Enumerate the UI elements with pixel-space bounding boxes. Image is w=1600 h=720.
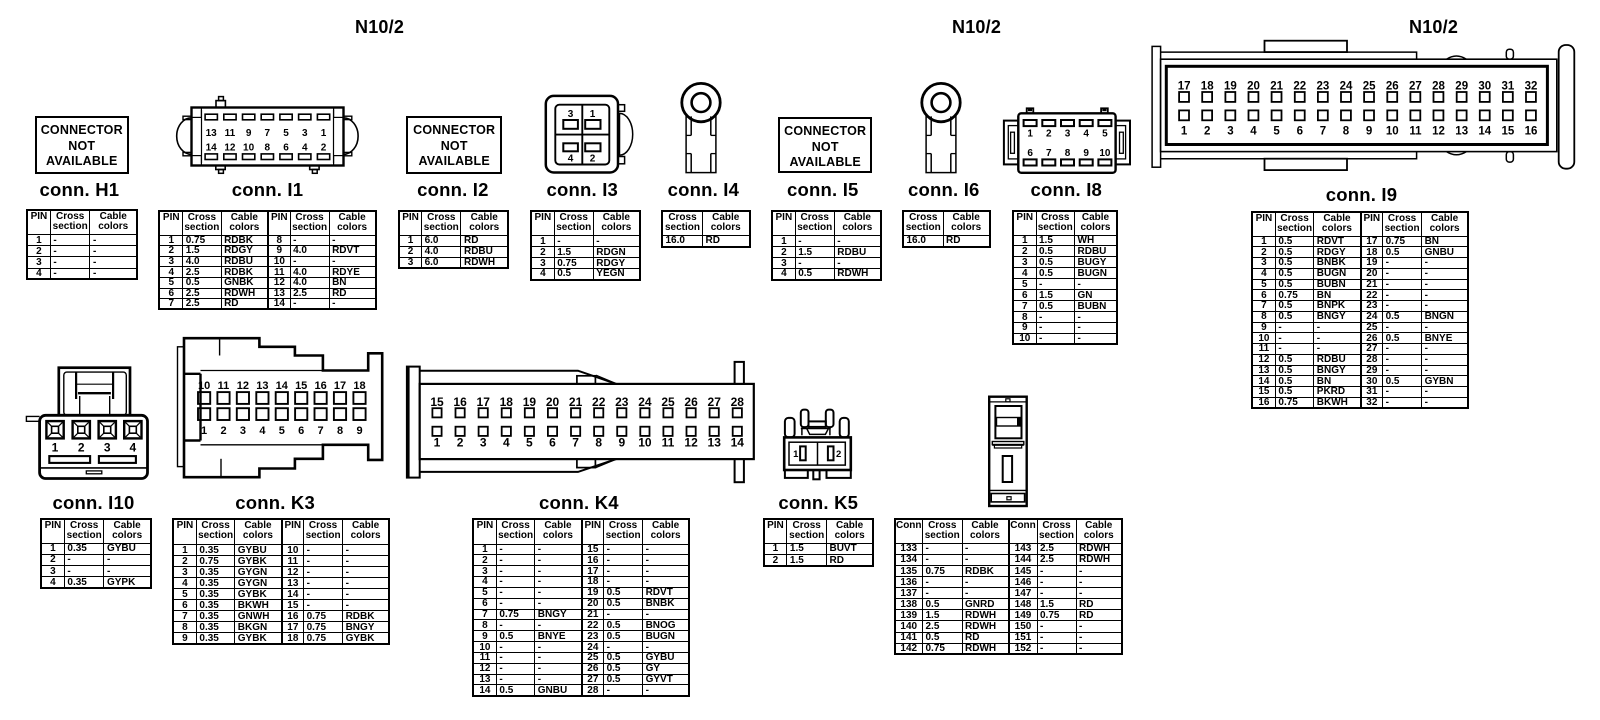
svg-text:2: 2 <box>321 143 327 154</box>
svg-text:1: 1 <box>1027 129 1033 140</box>
svg-text:26: 26 <box>1386 81 1399 93</box>
svg-text:4: 4 <box>568 154 574 165</box>
svg-text:17: 17 <box>1178 81 1191 93</box>
svg-text:5: 5 <box>1102 129 1108 140</box>
svg-text:17: 17 <box>334 380 346 392</box>
svg-text:13: 13 <box>708 435 722 449</box>
svg-text:4: 4 <box>1083 129 1089 140</box>
svg-text:4: 4 <box>129 440 136 454</box>
svg-text:28: 28 <box>1432 81 1445 93</box>
svg-text:28: 28 <box>731 395 745 409</box>
svg-text:6: 6 <box>283 143 289 154</box>
svg-text:31: 31 <box>1502 81 1515 93</box>
svg-text:16: 16 <box>1525 126 1538 138</box>
svg-text:3: 3 <box>1065 129 1071 140</box>
svg-text:2: 2 <box>1046 129 1052 140</box>
svg-text:6: 6 <box>549 435 556 449</box>
svg-text:13: 13 <box>256 380 268 392</box>
svg-text:1: 1 <box>434 435 441 449</box>
svg-text:9: 9 <box>618 435 625 449</box>
svg-text:27: 27 <box>1409 81 1422 93</box>
svg-text:18: 18 <box>353 380 365 392</box>
svg-text:26: 26 <box>684 395 698 409</box>
svg-text:5: 5 <box>283 128 289 139</box>
svg-text:17: 17 <box>477 395 491 409</box>
svg-text:15: 15 <box>295 380 307 392</box>
svg-text:3: 3 <box>302 128 308 139</box>
svg-text:10: 10 <box>198 380 210 392</box>
svg-text:11: 11 <box>218 380 230 392</box>
svg-text:9: 9 <box>356 425 362 437</box>
svg-text:18: 18 <box>1201 81 1214 93</box>
svg-text:5: 5 <box>1273 126 1280 138</box>
svg-text:25: 25 <box>1363 81 1376 93</box>
svg-text:3: 3 <box>104 440 111 454</box>
svg-text:7: 7 <box>1046 148 1052 159</box>
svg-text:14: 14 <box>1478 126 1491 138</box>
svg-text:23: 23 <box>615 395 629 409</box>
svg-text:6: 6 <box>298 425 304 437</box>
svg-text:23: 23 <box>1317 81 1330 93</box>
svg-text:9: 9 <box>246 128 252 139</box>
svg-text:8: 8 <box>1343 126 1350 138</box>
svg-text:7: 7 <box>318 425 324 437</box>
svg-text:10: 10 <box>638 435 652 449</box>
svg-text:1: 1 <box>590 109 596 120</box>
svg-text:30: 30 <box>1478 81 1491 93</box>
svg-text:14: 14 <box>731 435 745 449</box>
svg-text:1: 1 <box>1181 126 1188 138</box>
svg-text:2: 2 <box>457 435 464 449</box>
svg-text:5: 5 <box>279 425 285 437</box>
svg-text:2: 2 <box>78 440 85 454</box>
svg-text:9: 9 <box>1366 126 1372 138</box>
svg-text:27: 27 <box>708 395 722 409</box>
svg-text:7: 7 <box>1320 126 1326 138</box>
svg-text:3: 3 <box>1227 126 1233 138</box>
svg-text:7: 7 <box>265 128 271 139</box>
svg-text:1: 1 <box>321 128 327 139</box>
svg-text:4: 4 <box>503 435 510 449</box>
svg-text:2: 2 <box>836 449 841 460</box>
svg-text:25: 25 <box>661 395 675 409</box>
svg-text:21: 21 <box>569 395 583 409</box>
svg-text:13: 13 <box>206 128 218 139</box>
svg-text:2: 2 <box>220 425 226 437</box>
svg-text:4: 4 <box>259 425 266 437</box>
svg-text:20: 20 <box>1247 81 1260 93</box>
svg-text:1: 1 <box>793 449 799 460</box>
svg-text:18: 18 <box>500 395 514 409</box>
svg-text:8: 8 <box>337 425 343 437</box>
svg-text:3: 3 <box>240 425 246 437</box>
svg-text:10: 10 <box>1099 148 1111 159</box>
svg-text:3: 3 <box>480 435 487 449</box>
svg-text:19: 19 <box>1224 81 1237 93</box>
svg-text:8: 8 <box>595 435 602 449</box>
svg-text:24: 24 <box>1340 81 1353 93</box>
svg-text:15: 15 <box>1502 126 1515 138</box>
svg-text:4: 4 <box>1250 126 1257 138</box>
svg-text:11: 11 <box>225 128 236 139</box>
svg-text:19: 19 <box>523 395 537 409</box>
svg-text:14: 14 <box>276 380 289 392</box>
svg-text:3: 3 <box>568 109 574 120</box>
svg-text:32: 32 <box>1525 81 1538 93</box>
svg-text:2: 2 <box>590 154 596 165</box>
svg-text:29: 29 <box>1455 81 1468 93</box>
svg-text:10: 10 <box>1386 126 1399 138</box>
svg-text:12: 12 <box>237 380 249 392</box>
svg-text:12: 12 <box>224 143 236 154</box>
svg-text:15: 15 <box>430 395 444 409</box>
svg-text:20: 20 <box>546 395 560 409</box>
svg-text:8: 8 <box>1065 148 1071 159</box>
svg-text:8: 8 <box>265 143 271 154</box>
svg-text:9: 9 <box>1083 148 1089 159</box>
svg-text:5: 5 <box>526 435 533 449</box>
svg-text:24: 24 <box>638 395 652 409</box>
svg-text:16: 16 <box>314 380 326 392</box>
svg-text:21: 21 <box>1270 81 1283 93</box>
svg-text:7: 7 <box>572 435 579 449</box>
svg-text:12: 12 <box>1432 126 1445 138</box>
svg-text:12: 12 <box>684 435 698 449</box>
svg-text:2: 2 <box>1204 126 1210 138</box>
svg-text:13: 13 <box>1455 126 1468 138</box>
svg-text:22: 22 <box>592 395 606 409</box>
svg-text:6: 6 <box>1297 126 1303 138</box>
svg-text:10: 10 <box>243 143 255 154</box>
svg-text:4: 4 <box>302 143 308 154</box>
svg-text:16: 16 <box>453 395 467 409</box>
svg-text:11: 11 <box>662 435 675 449</box>
svg-text:6: 6 <box>1027 148 1033 159</box>
svg-text:1: 1 <box>52 440 59 454</box>
svg-text:22: 22 <box>1293 81 1306 93</box>
svg-text:11: 11 <box>1409 126 1422 138</box>
svg-text:14: 14 <box>206 143 218 154</box>
svg-text:1: 1 <box>201 425 207 437</box>
